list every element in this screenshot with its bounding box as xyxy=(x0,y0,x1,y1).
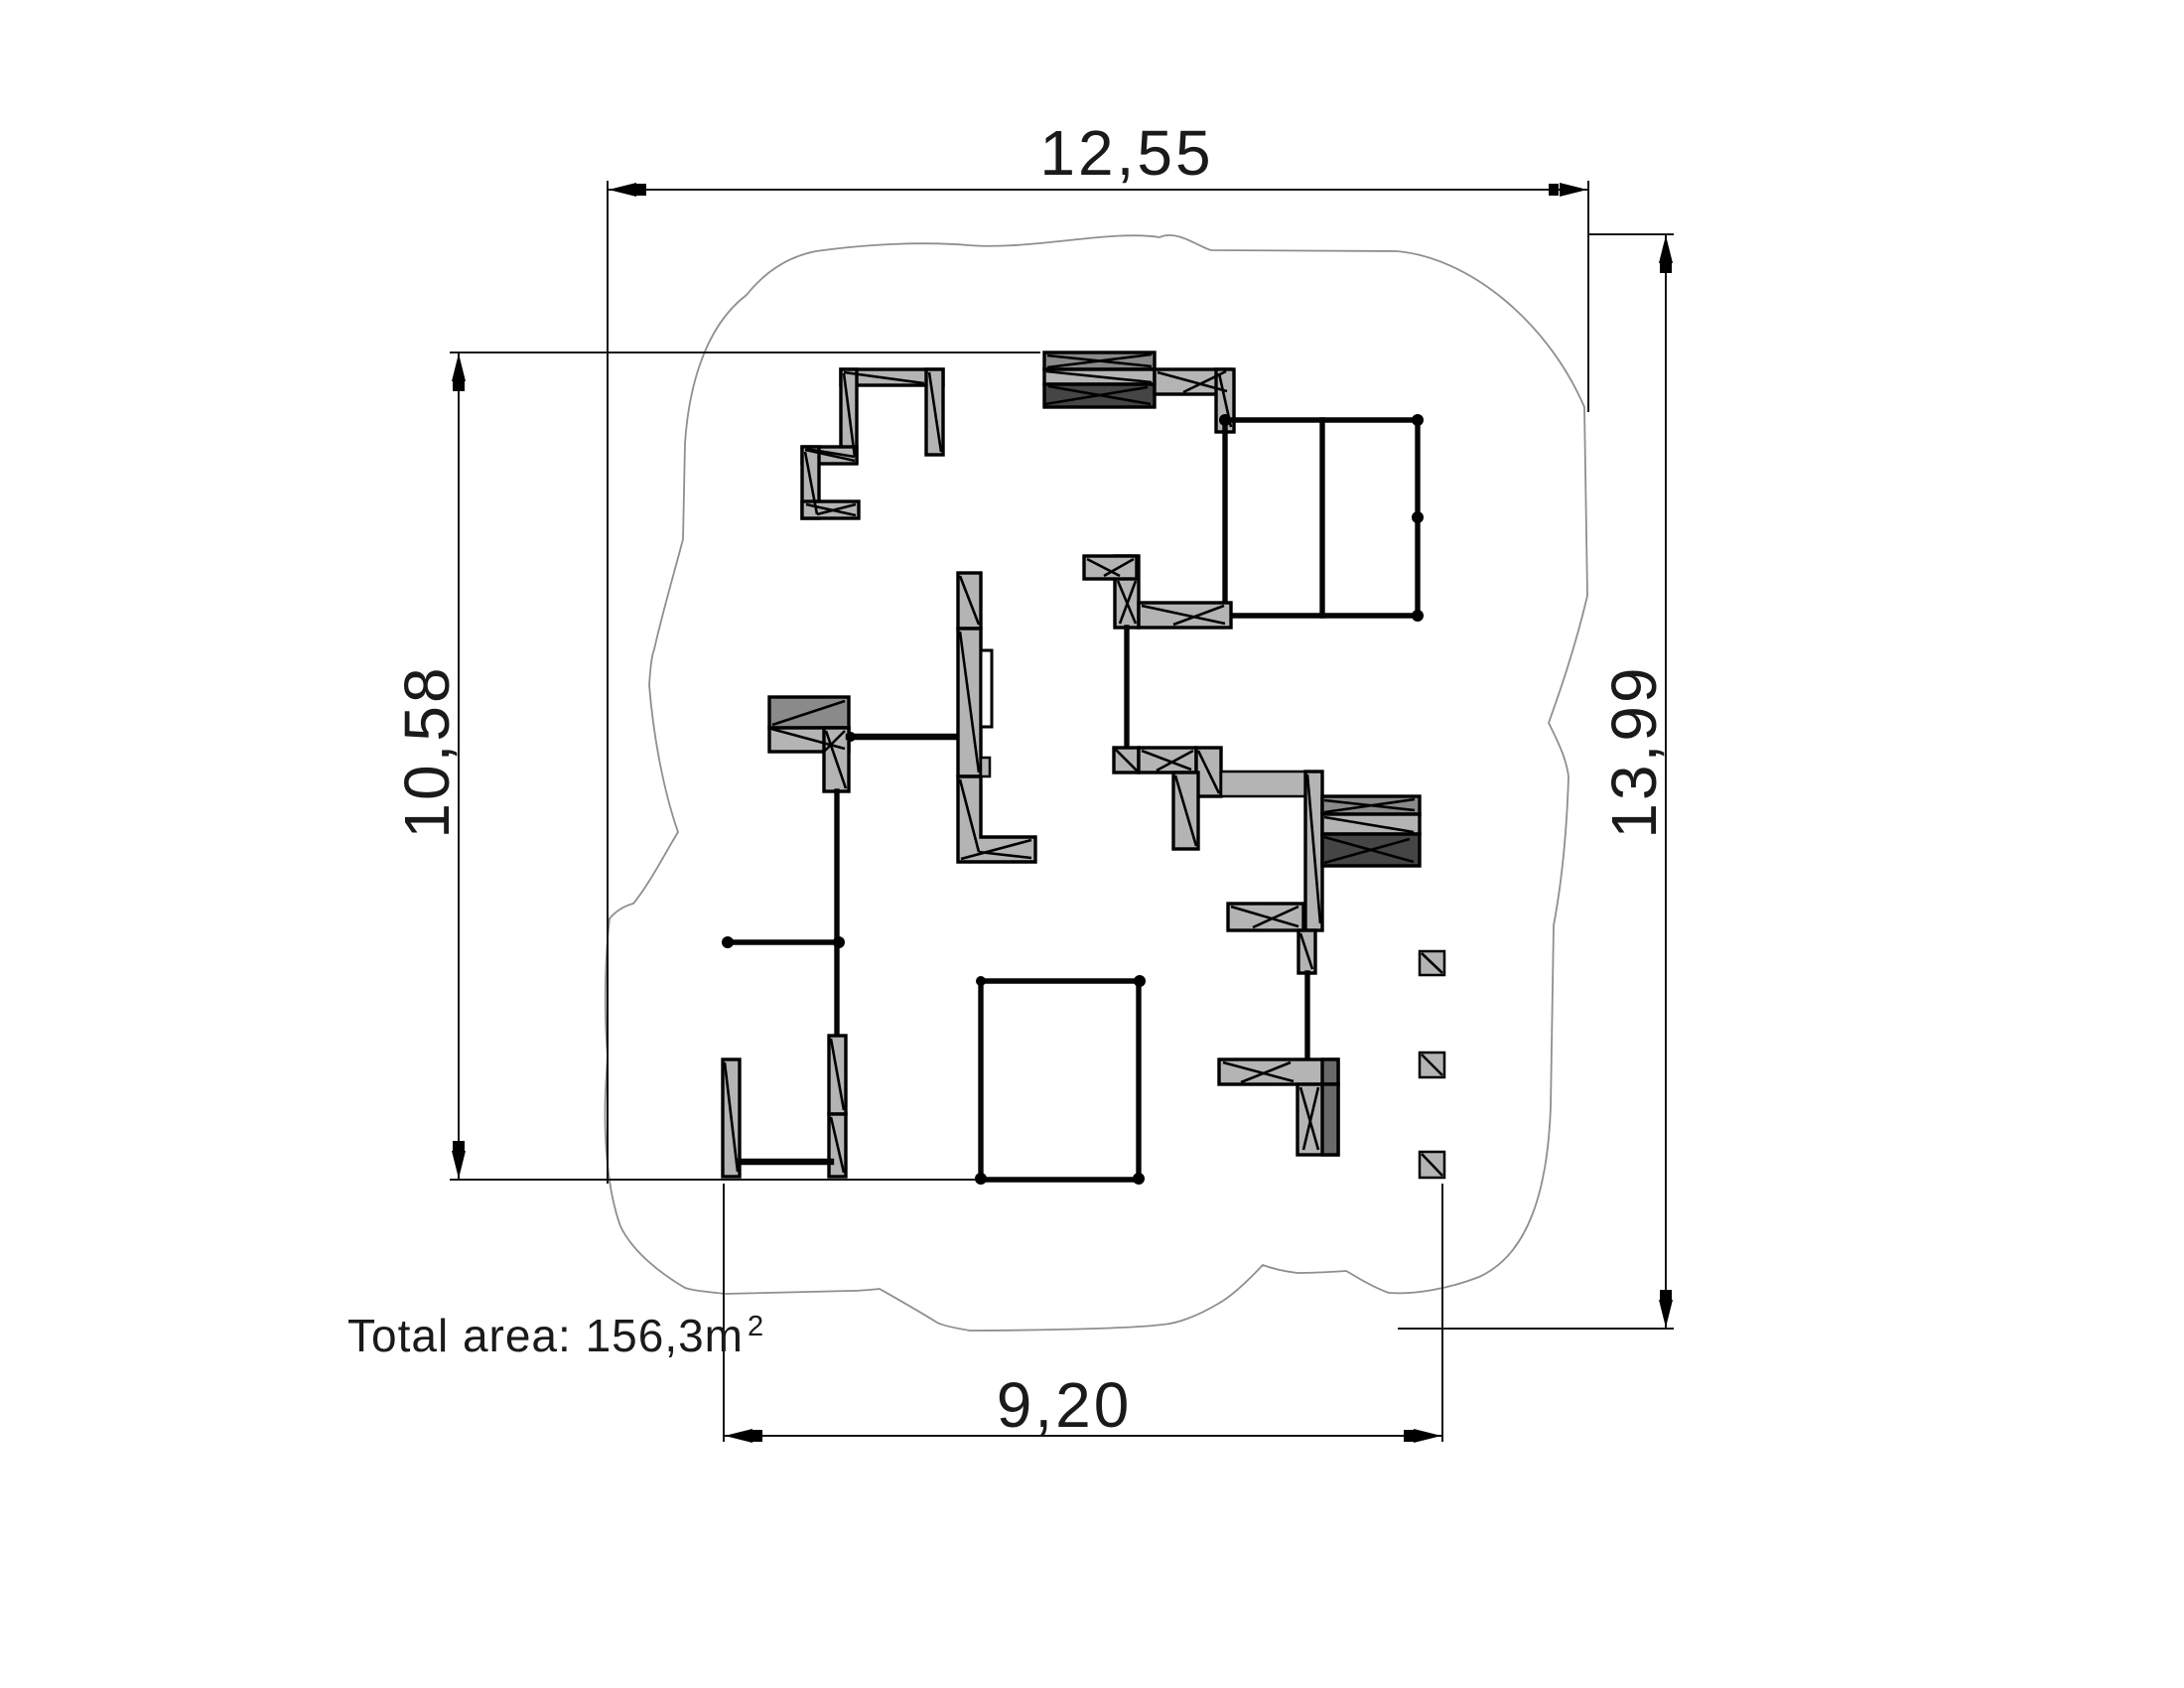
total-area-text: Total area: 156,3m2 xyxy=(347,1310,764,1361)
arrowhead xyxy=(452,1151,466,1179)
room-bottom-center xyxy=(975,975,1146,1185)
walls xyxy=(722,352,1444,1185)
room-top-right xyxy=(1219,414,1424,622)
arrowhead xyxy=(725,1429,752,1443)
arrow-stub xyxy=(1404,1430,1414,1442)
floor-plan-page: 12,55 10,58 13,99 9,20 Total area: 156, xyxy=(0,0,2184,1688)
total-area-label: Total area: 156,3m2 xyxy=(347,1310,764,1361)
dimension-right-label: 13,99 xyxy=(1598,664,1670,838)
hatch-lines xyxy=(725,1039,844,1173)
wall-block-north xyxy=(1044,352,1155,407)
arrow-stub xyxy=(1660,1290,1672,1300)
dimension-left-label: 10,58 xyxy=(391,664,463,838)
dimension-left: 10,58 xyxy=(391,352,1139,1180)
hatch-lines xyxy=(805,372,941,515)
arrow-stub xyxy=(1549,184,1559,196)
dimension-bottom: 9,20 xyxy=(724,1184,1442,1443)
arrow-stub xyxy=(1660,263,1672,273)
arrowhead xyxy=(452,353,466,381)
wall-bottom-left xyxy=(723,1036,846,1177)
dimension-top-label: 12,55 xyxy=(1039,117,1213,189)
wall-center-left xyxy=(722,697,959,1036)
door-leaf xyxy=(981,650,992,727)
floor-plan-canvas: 12,55 10,58 13,99 9,20 Total area: 156, xyxy=(0,0,2184,1688)
arrowhead xyxy=(609,183,636,197)
arrowhead xyxy=(1414,1429,1441,1443)
arrowhead xyxy=(1659,235,1673,263)
arrow-stub xyxy=(453,1141,465,1151)
arrowhead xyxy=(1560,183,1587,197)
columns-east xyxy=(1420,951,1444,1178)
arrow-stub xyxy=(453,381,465,391)
wall-stair-top-left xyxy=(802,369,943,518)
arrow-stub xyxy=(752,1430,762,1442)
wall-center-vertical xyxy=(958,573,1035,862)
arrow-stub xyxy=(636,184,646,196)
wall-block-east xyxy=(1322,796,1420,866)
door-stop xyxy=(981,758,990,776)
dimension-bottom-label: 9,20 xyxy=(997,1369,1133,1441)
total-area-exponent: 2 xyxy=(748,1311,764,1342)
wall-mid-junction xyxy=(1084,556,1231,748)
dimension-top: 12,55 xyxy=(608,117,1588,1184)
arrowhead xyxy=(1659,1300,1673,1328)
wall-lower-right xyxy=(1219,904,1338,1155)
